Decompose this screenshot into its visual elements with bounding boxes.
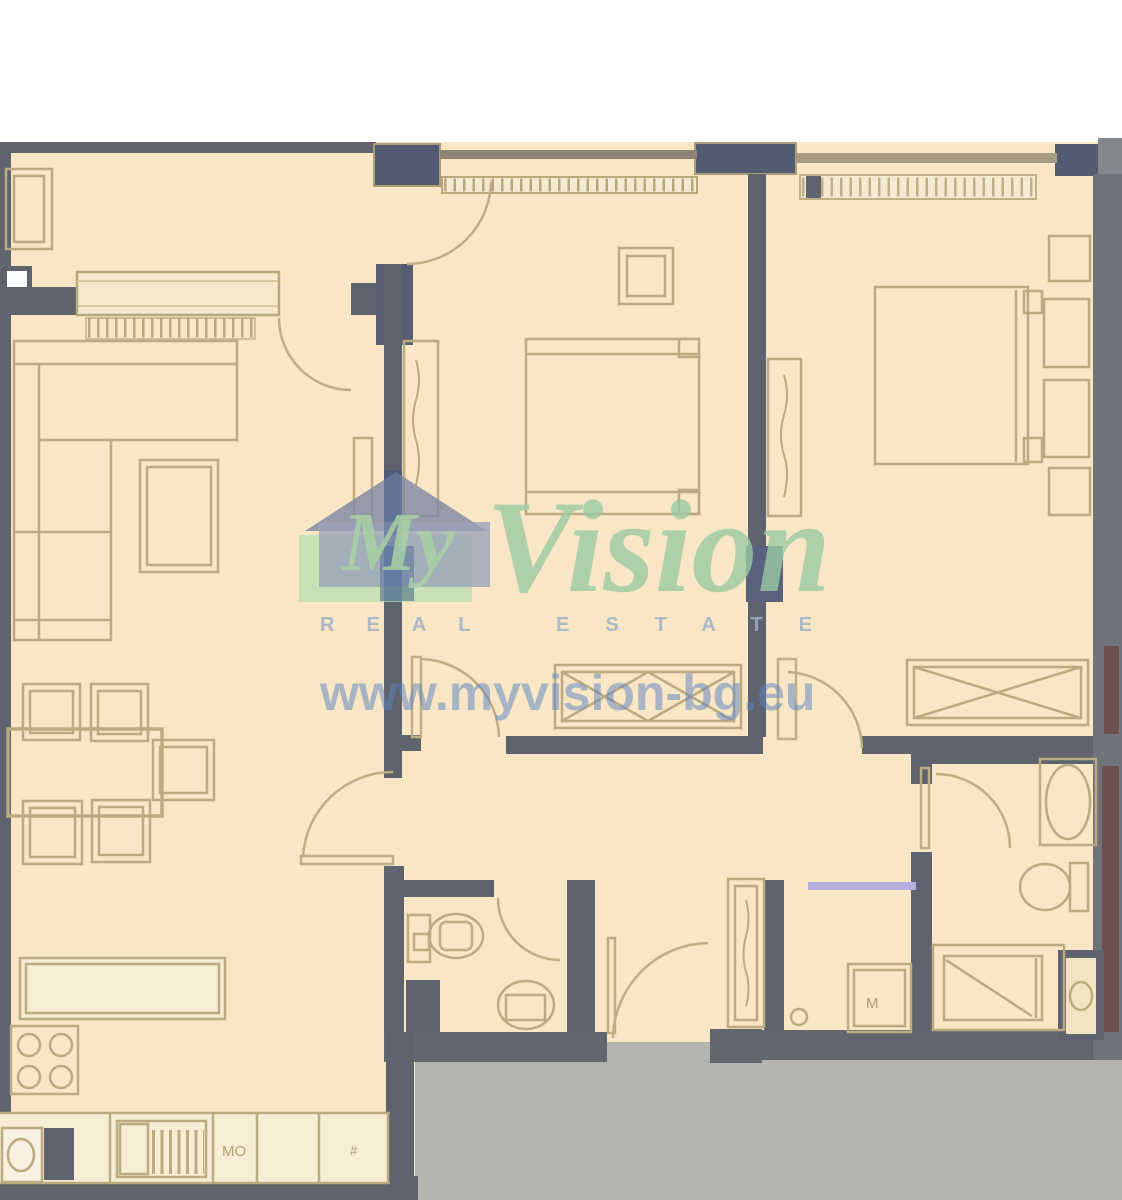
svg-text:My: My bbox=[340, 496, 455, 589]
svg-text:REAL: REAL bbox=[320, 614, 502, 636]
svg-text:ESTATE: ESTATE bbox=[556, 614, 848, 636]
svg-text:Vision: Vision bbox=[486, 473, 831, 620]
svg-text:www.myvision-bg.eu: www.myvision-bg.eu bbox=[319, 665, 815, 721]
svg-text:M: M bbox=[866, 995, 879, 1012]
svg-text:MO: MO bbox=[222, 1143, 246, 1160]
svg-text:#: # bbox=[350, 1143, 358, 1158]
